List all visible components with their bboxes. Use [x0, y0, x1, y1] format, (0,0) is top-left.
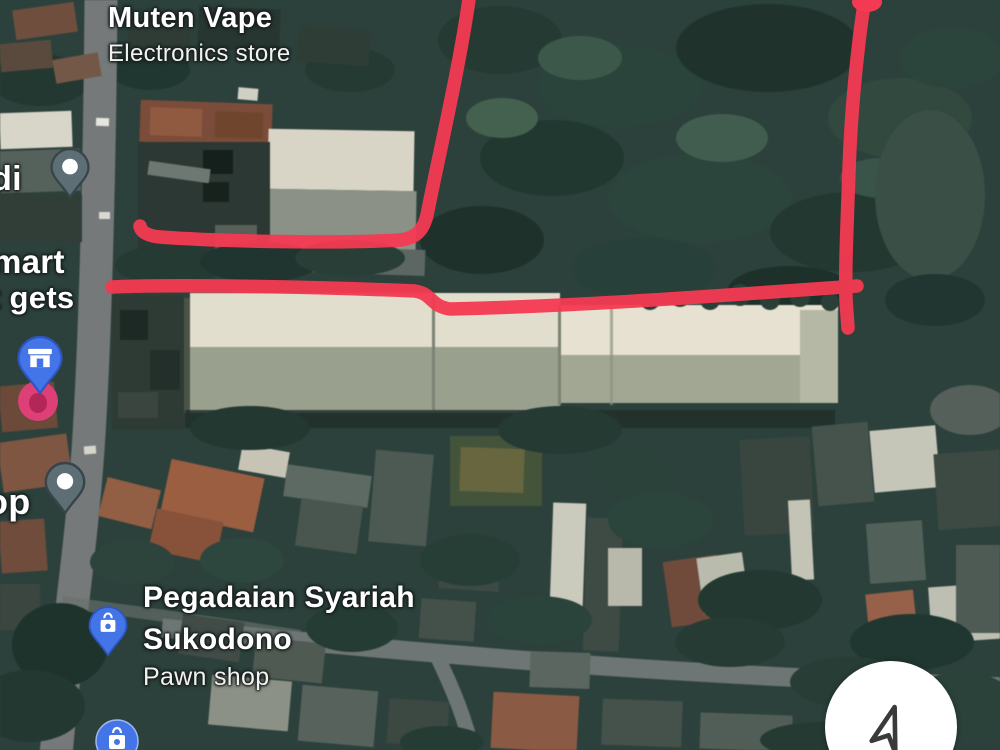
map-label-partial-t-gets[interactable]: t gets: [0, 280, 74, 316]
map-label-muten-vape-title[interactable]: Muten Vape: [108, 2, 272, 35]
store-pin-icon[interactable]: [12, 330, 68, 400]
map-label-partial-mart[interactable]: mart: [0, 243, 65, 281]
map-label-pegadaian-subtitle[interactable]: Pawn shop: [143, 663, 269, 692]
pawnshop-circle-icon[interactable]: [94, 718, 140, 750]
map-label-partial-ndi[interactable]: ndi: [0, 160, 22, 199]
maps-screenshot: Muten Vape Electronics store ndi mart t …: [0, 0, 1000, 750]
map-label-pegadaian-line2[interactable]: Sukodono: [143, 623, 292, 657]
map-label-pegadaian-line1[interactable]: Pegadaian Syariah: [143, 581, 415, 615]
map-label-partial-op[interactable]: op: [0, 481, 31, 523]
place-pin-icon[interactable]: [46, 142, 94, 204]
map-label-muten-vape-subtitle[interactable]: Electronics store: [108, 40, 291, 68]
navigation-arrow-icon: [862, 701, 920, 750]
place-pin-icon[interactable]: [40, 456, 90, 520]
pawnshop-pin-icon[interactable]: [84, 598, 132, 664]
